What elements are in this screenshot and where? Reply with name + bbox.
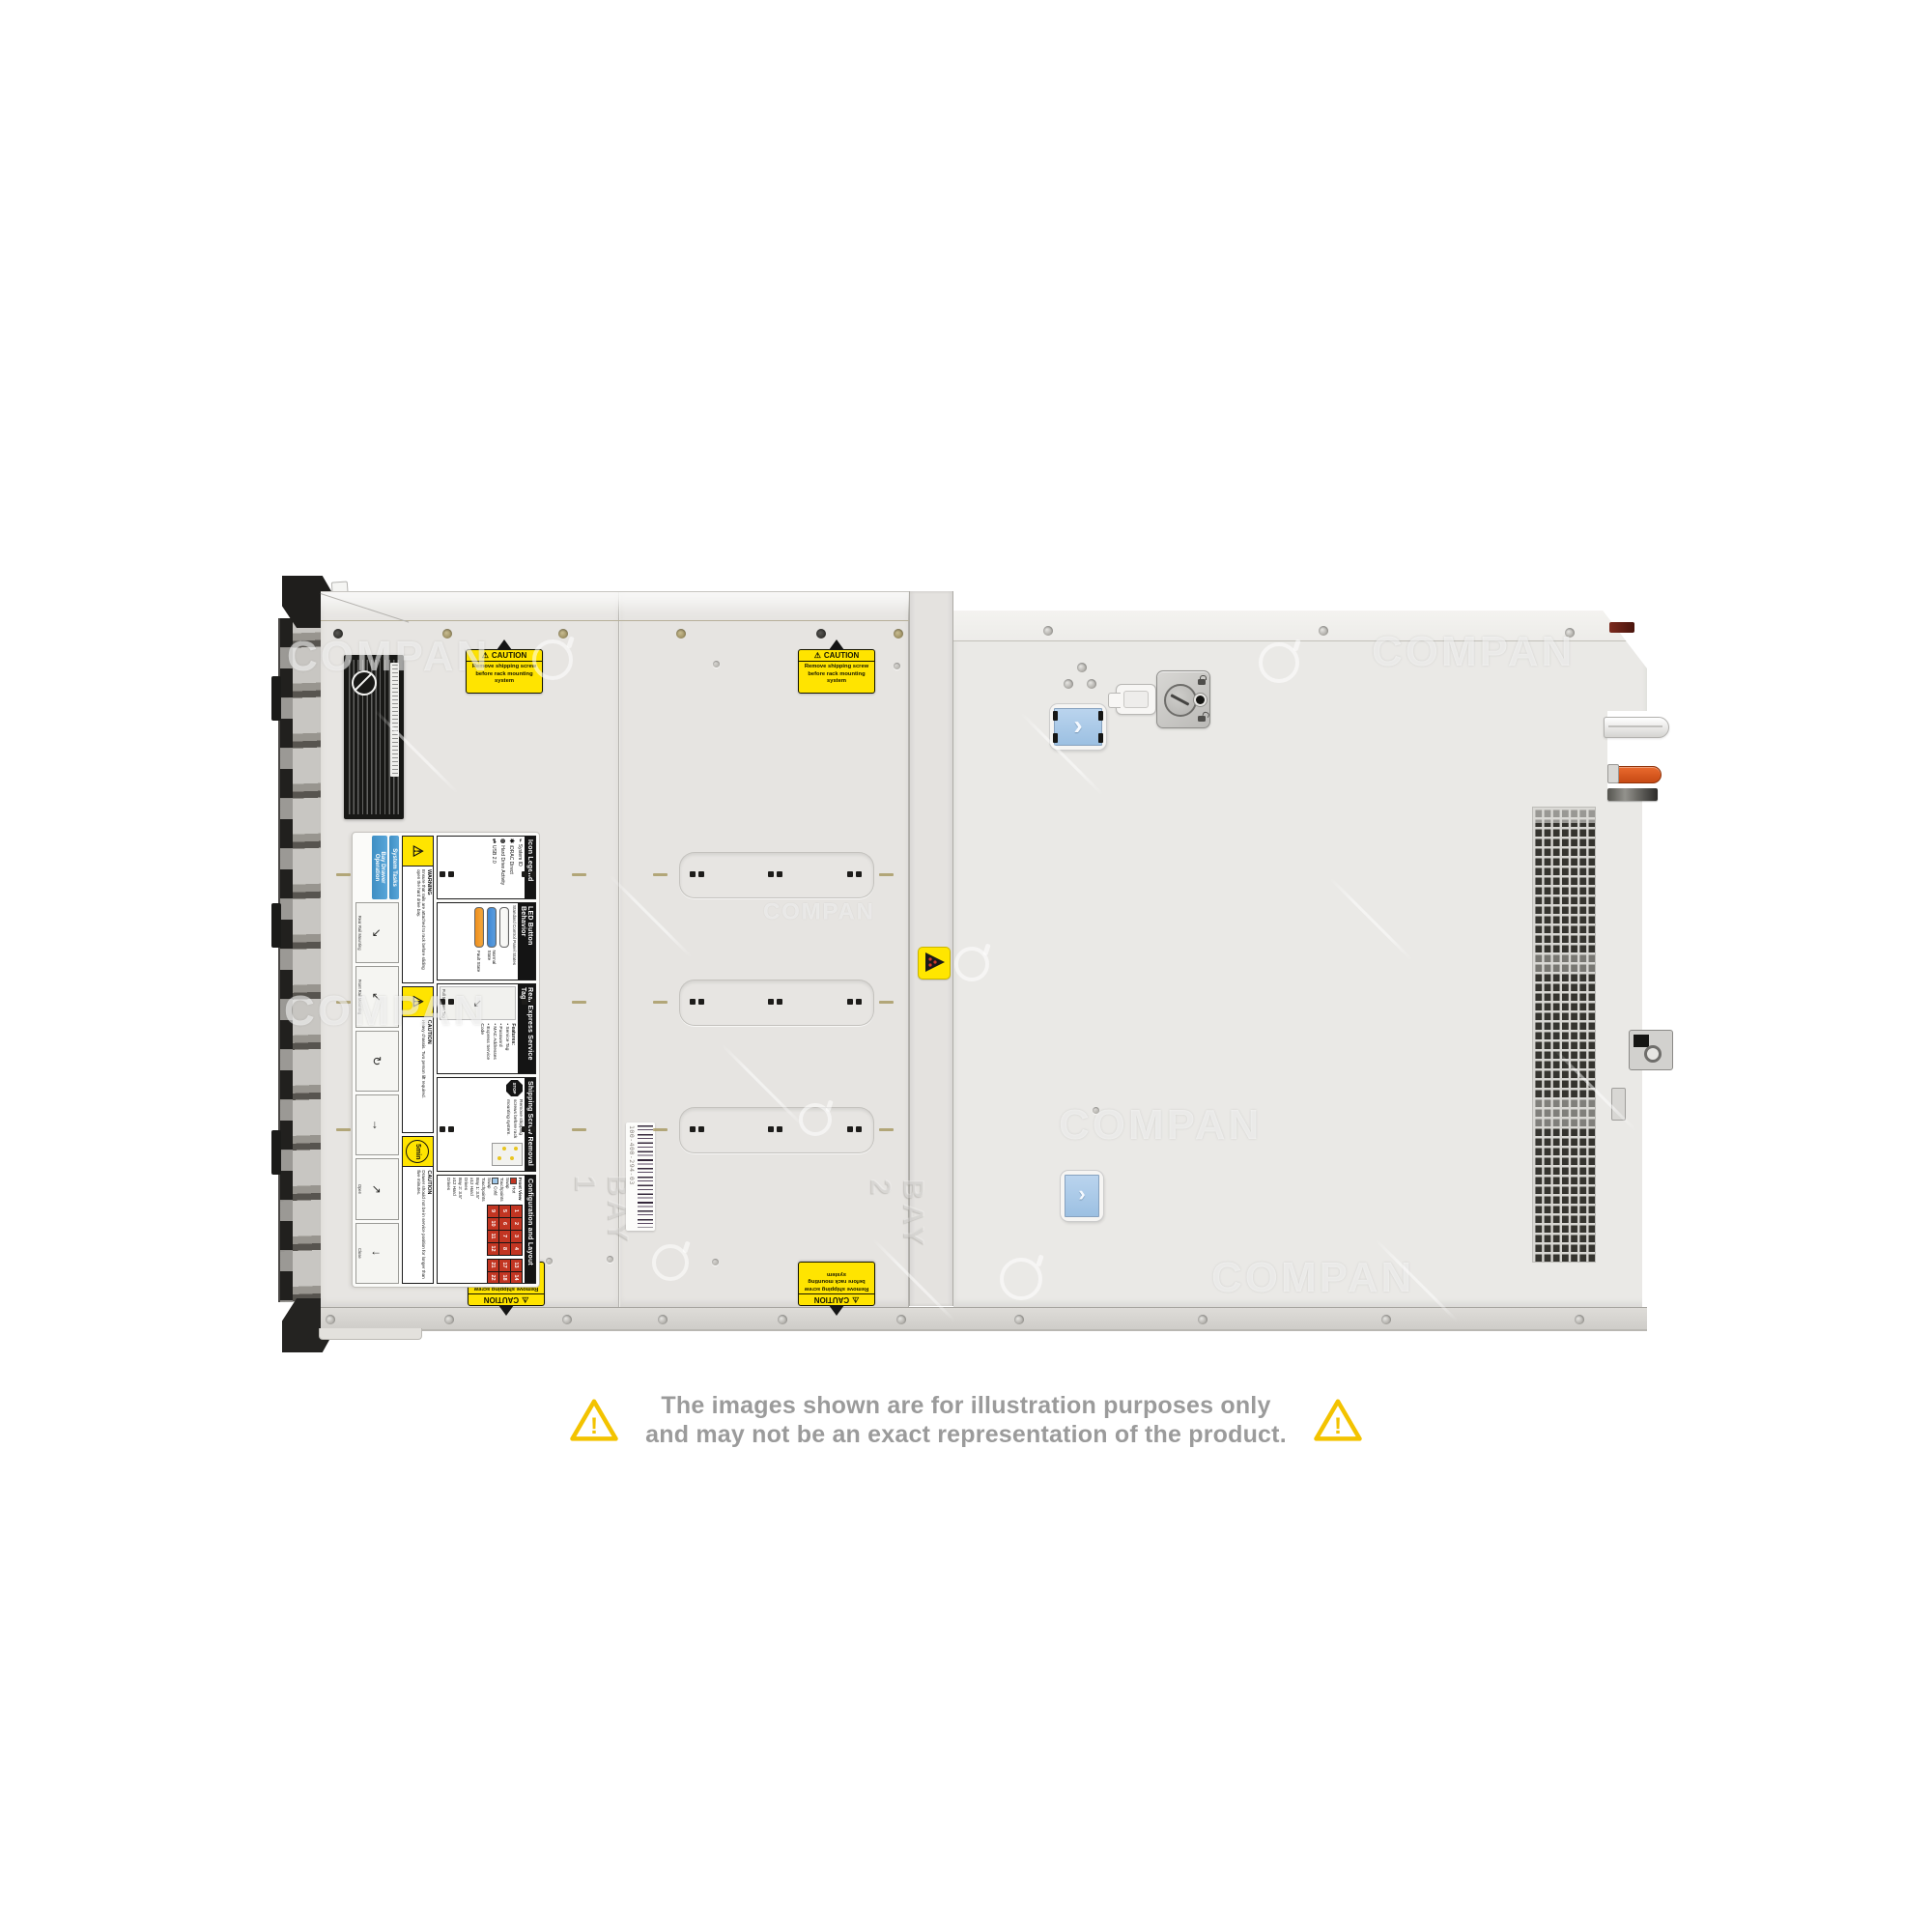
warning-triangle-icon: ! [568, 1397, 620, 1444]
warning-triangle-icon: ! [1312, 1397, 1364, 1444]
vent-slot-pair [847, 999, 864, 1005]
screw-hole [1381, 1315, 1391, 1324]
bay-drawer-chip: Bay Drawer Operation [372, 836, 387, 899]
vent-slot-pair [522, 999, 538, 1005]
edge-tab [1611, 1088, 1626, 1121]
bracket-hole [1644, 1045, 1662, 1063]
vent-dash [572, 873, 586, 876]
vent-dash [336, 873, 351, 876]
screw-hole [1077, 663, 1087, 672]
rivet [712, 1259, 719, 1265]
caution-five-minutes: 5min CAUTION Drawer should not be in ser… [402, 1136, 434, 1284]
configuration-layout-box: Configuration and Layout Front View Hot … [437, 1175, 536, 1284]
vent-slot-pair [768, 1126, 784, 1132]
rivet [894, 663, 900, 669]
vent-slot-pair [690, 1126, 706, 1132]
vent-dash [879, 1001, 894, 1004]
prohibition-icon [352, 670, 377, 696]
vent-slot-pair [690, 871, 706, 877]
chevron-right-icon: › [1078, 1183, 1085, 1205]
screw-hole [444, 1315, 454, 1324]
icon-legend-box: Icon Legend ⌁System ID ✱iDRAC Direct ◍Ha… [437, 836, 536, 899]
screw-location-illustration [492, 1143, 523, 1166]
vent-dash [572, 1001, 586, 1004]
warning-symbol-icon: ⚠ [852, 1295, 859, 1304]
warning-symbol-icon: ⚠ [522, 1295, 528, 1304]
vent-dash [572, 1128, 586, 1131]
screw-hole [1198, 1315, 1207, 1324]
barcode-stripes [638, 1125, 653, 1228]
locked-icon [1198, 679, 1206, 685]
step-illustration: ↓Close [355, 1223, 399, 1284]
fall-hazard-icon: ⚠ [403, 837, 433, 867]
screw-hole [1319, 626, 1328, 636]
step-illustration: ↻ [355, 1031, 399, 1092]
screw-hole [778, 1315, 787, 1324]
vent-dash [653, 1001, 668, 1004]
drive-handle-tab [271, 1130, 281, 1175]
vent-slot-pair [847, 871, 864, 877]
slider-latch [1116, 684, 1156, 715]
barcode-label: 100-400-294-03 [626, 1122, 655, 1231]
screw-hole [1565, 628, 1575, 638]
step-illustration: ↘Rear Rail Mounting [355, 902, 399, 963]
rivet [546, 1258, 553, 1264]
vent-dash [653, 873, 668, 876]
spec-strip [390, 663, 399, 777]
stop-icon: STOP [506, 1080, 523, 1096]
warning-triangle-sticker [918, 947, 951, 980]
svg-text:!: ! [590, 1413, 598, 1439]
screw-hole [562, 1315, 572, 1324]
screw-hole [1575, 1315, 1584, 1324]
rear-latch-bracket [1629, 1030, 1673, 1070]
screw-hole [1043, 626, 1053, 636]
vent-slot-pair [440, 1126, 456, 1132]
chassis-slide-rail-lip [319, 1328, 422, 1340]
lift-hazard-icon: ⚠ [403, 987, 433, 1017]
vent-dash [879, 873, 894, 876]
cover-lock-plate [1156, 670, 1210, 728]
lock-pin-hole [1196, 696, 1205, 704]
drive-handle-tab [271, 676, 281, 721]
front-drive-bezel-strip [278, 618, 325, 1302]
pull-handle [1604, 717, 1669, 738]
vent-slot-pair [440, 999, 456, 1005]
chassis-side-wall [321, 1307, 1647, 1331]
vent-slot-pair [768, 871, 784, 877]
led-pill-off [499, 907, 509, 948]
vent-grid [1532, 807, 1596, 1263]
vent-slot-pair [440, 871, 456, 877]
rivet [713, 661, 720, 668]
vent-slot-pair [690, 999, 706, 1005]
screw-hole [558, 629, 568, 639]
warning-symbol-icon: ⚠ [482, 651, 489, 660]
warning-rails: ⚠ WARNING Ensure that rails are attached… [402, 836, 434, 983]
step-illustration: ↙Front Rail Mounting [355, 966, 399, 1027]
vent-dash [653, 1128, 668, 1131]
screw-hole [326, 1315, 335, 1324]
bay2-embossing: BAY 2 [864, 1179, 929, 1248]
release-lever-orange [1613, 766, 1662, 783]
step-illustration: → [355, 1094, 399, 1155]
vent-slot-pair [768, 999, 784, 1005]
screw-hole [1014, 1315, 1024, 1324]
disclaimer: ! The images shown are for illustration … [0, 1391, 1932, 1449]
drawer-release-button-bottom: › [1061, 1171, 1103, 1221]
five-min-clock-icon: 5min [407, 1140, 430, 1163]
vent-slot-pair [847, 1126, 864, 1132]
drive-handle-tab [271, 903, 281, 948]
keyhole-lock [1164, 684, 1197, 717]
vent-dash [336, 1001, 351, 1004]
svg-text:!: ! [1334, 1413, 1342, 1439]
vent-dash [336, 1128, 351, 1131]
screw-hole [442, 629, 452, 639]
screw-hole [1087, 679, 1096, 689]
bay1-embossing: BAY 1 [568, 1175, 634, 1244]
screw-hole [658, 1315, 668, 1324]
latch-bar [1607, 788, 1658, 801]
shipping-screw-removal-box: Shipping Screw Removal STOP Remove shipp… [437, 1077, 536, 1172]
vent-slot-pair [522, 871, 538, 877]
rear-express-service-tag-box: Rear Express Service Tag ↘ Pull to open … [437, 983, 536, 1074]
bay1-drive-grid: 1234 5678 9101112 [487, 1205, 523, 1256]
vent-dash [879, 1128, 894, 1131]
caution-label-top-right: ⚠CAUTION Remove shipping screwbefore rac… [798, 649, 875, 694]
hazard-arrow-icon [921, 950, 948, 977]
rivet [607, 1256, 613, 1263]
vent-slot-pair [522, 1126, 538, 1132]
screw-hole [894, 629, 903, 639]
system-tasks-chip: System Tasks [389, 836, 399, 899]
led-pill-fault [474, 907, 484, 948]
screw-hole [676, 629, 686, 639]
bay2-drive-grid: 13141516 17181920 21222324 [487, 1259, 523, 1284]
rivet [1093, 1107, 1099, 1114]
chevron-right-icon: › [1073, 712, 1082, 739]
led-pill-normal [487, 907, 497, 948]
service-instruction-label: Icon Legend ⌁System ID ✱iDRAC Direct ◍Ha… [353, 833, 539, 1287]
shipping-clip [1609, 622, 1634, 633]
screw-hole [333, 629, 343, 639]
caution-heavy-chassis: ⚠ CAUTION Heavy chassis. Two person lift… [402, 986, 434, 1134]
warning-symbol-icon: ⚠ [814, 651, 821, 660]
screw-hole [896, 1315, 906, 1324]
caution-label-bottom-right: ⚠CAUTION Remove shipping screwbefore rac… [798, 1262, 875, 1306]
led-behavior-box: LED Button Behavior Standard Control Pan… [437, 902, 536, 980]
step-illustration: ↗Open [355, 1158, 399, 1219]
unlocked-icon [1198, 716, 1206, 722]
caution-label-top-left: ⚠CAUTION Remove shipping screwbefore rac… [466, 649, 543, 694]
product-photo-page: ⚠CAUTION Remove shipping screwbefore rac… [0, 0, 1932, 1932]
screw-hole [1064, 679, 1073, 689]
drawer-release-button-top: › [1050, 704, 1106, 750]
disclaimer-text: The images shown are for illustration pu… [645, 1391, 1287, 1449]
screw-hole [816, 629, 826, 639]
regulatory-label [344, 655, 404, 819]
